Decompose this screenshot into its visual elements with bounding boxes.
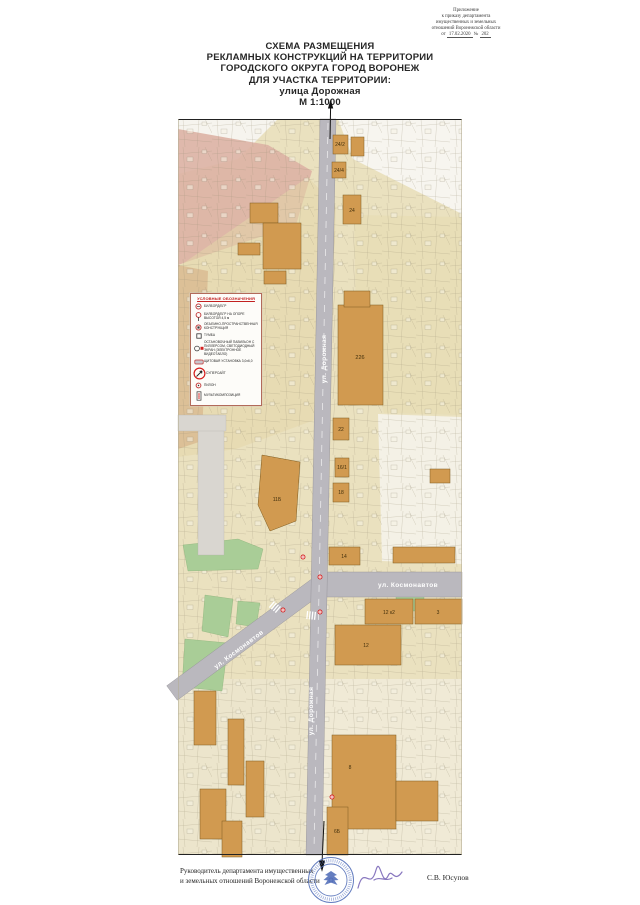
legend-label: ТУМБА — [204, 334, 215, 338]
legend-label: ОСТАНОВОЧНЫЙ ПАВИЛЬОН С ПИЛЛЕРСОМ, СВЕТО… — [204, 341, 259, 356]
legend-label: БИЛБОРД/БГР — [204, 305, 226, 309]
ad-marker — [330, 795, 334, 799]
legend-item-billboard-pole: БИЛБОРД/БГР НА ОПОРЕ ВЫСОТОЙ 4,5 м — [193, 312, 259, 321]
street-label-kosmonavtov: ул. Космонавтов — [378, 582, 438, 589]
legend-item-shield-board: ЩИТОВАЯ УСТАНОВКА 3,0х6,0 — [193, 359, 259, 365]
supersite-icon — [193, 367, 206, 380]
scale-line: М 1:1000 — [120, 97, 520, 108]
appendix-reference: Приложение к приказу департамента имущес… — [400, 8, 532, 38]
building — [264, 271, 286, 284]
legend-label: ОБЪЕМНО-ПРОСТРАНСТВЕННАЯ КОНСТРУКЦИЯ — [204, 323, 259, 331]
city-map: 24/2 24/4 24 226 22 16/1 18 11Б 14 12 к2… — [178, 119, 462, 855]
building-label: 18 — [338, 490, 344, 496]
street-label-dorozhnaya: ул. Дорожная — [308, 687, 315, 736]
building — [430, 469, 450, 483]
building — [393, 547, 455, 563]
building-label: 12 — [363, 643, 369, 649]
pylon-icon — [193, 382, 204, 389]
order-number: 202 — [480, 32, 491, 38]
legend-item-multicomposition: МУЛЬТИКОМПОЗИЦИЯ — [193, 391, 259, 401]
legend-label: ПИЛОН — [204, 384, 216, 388]
legend-item-billboard: БИЛБОРД/БГР — [193, 303, 259, 310]
building-label: 24/2 — [335, 142, 345, 148]
building — [250, 203, 278, 223]
building — [194, 691, 216, 745]
building-label: 8 — [349, 765, 352, 771]
legend-label: ЩИТОВАЯ УСТАНОВКА 3,0х6,0 — [204, 360, 253, 364]
legend-label: БИЛБОРД/БГР НА ОПОРЕ ВЫСОТОЙ 4,5 м — [204, 313, 259, 321]
tumba-icon — [193, 333, 204, 339]
building-label: 14 — [341, 554, 347, 560]
street-label-dorozhnaya: ул. Дорожная — [321, 335, 328, 384]
service-road — [198, 415, 224, 555]
building-label: 22 — [338, 427, 344, 433]
ad-marker — [318, 575, 322, 579]
legend-item-tumba: ТУМБА — [193, 333, 259, 339]
building-label: 16/1 — [337, 465, 347, 471]
building-label: 24 — [349, 208, 355, 214]
building-label: 6Б — [334, 829, 341, 835]
scheme-document-page: Приложение к приказу департамента имущес… — [0, 0, 640, 905]
street-name-line: улица Дорожная — [120, 86, 520, 97]
multicomposition-icon — [193, 391, 204, 401]
signature — [352, 856, 414, 905]
appendix-line: отношений Воронежской области — [400, 26, 532, 32]
signer-title-line: и земельных отношений Воронежской област… — [180, 877, 320, 887]
building-8-annex — [396, 781, 438, 821]
title-line: СХЕМА РАЗМЕЩЕНИЯ — [120, 41, 520, 52]
building-label: 24/4 — [334, 168, 344, 174]
legend-label: МУЛЬТИКОМПОЗИЦИЯ — [204, 394, 240, 398]
building-label: 226 — [355, 355, 364, 361]
signer-title: Руководитель департамента имущественных … — [180, 867, 320, 886]
number-sign: № — [474, 32, 479, 37]
building-label: 11Б — [273, 497, 282, 503]
legend-item-supersite: СУПЕРСАЙТ — [193, 367, 259, 380]
ad-marker — [281, 608, 285, 612]
order-date: 17.02.2020 — [447, 32, 473, 38]
building-226-annex — [344, 291, 370, 307]
legend-item-volumetric: ОБЪЕМНО-ПРОСТРАНСТВЕННАЯ КОНСТРУКЦИЯ — [193, 323, 259, 331]
volumetric-structure-icon — [193, 324, 204, 331]
building — [351, 137, 364, 156]
billboard-icon — [193, 303, 204, 310]
legend-title: УСЛОВНЫЕ ОБОЗНАЧЕНИЯ — [193, 296, 259, 301]
building — [238, 243, 260, 255]
date-prefix: от — [441, 32, 445, 37]
building — [222, 821, 242, 857]
service-road — [178, 415, 226, 431]
billboard-pole-icon — [193, 312, 204, 321]
building-label: 3 — [437, 610, 440, 616]
legend-label: СУПЕРСАЙТ — [206, 372, 226, 376]
shield-board-icon — [193, 359, 204, 365]
ad-marker — [301, 555, 305, 559]
building — [228, 719, 244, 785]
signer-title-line: Руководитель департамента имущественных — [180, 867, 320, 877]
ad-marker — [318, 610, 322, 614]
legend-item-pavilion: ОСТАНОВОЧНЫЙ ПАВИЛЬОН С ПИЛЛЕРСОМ, СВЕТО… — [193, 341, 259, 356]
building — [246, 761, 264, 817]
scheme-title: СХЕМА РАЗМЕЩЕНИЯ РЕКЛАМНЫХ КОНСТРУКЦИЙ Н… — [120, 41, 520, 108]
legend-item-pylon: ПИЛОН — [193, 382, 259, 389]
building-label: 12 к2 — [383, 610, 395, 616]
pavilion-icon — [193, 345, 204, 352]
green-area — [202, 595, 233, 637]
building — [263, 223, 301, 269]
title-line: ДЛЯ УЧАСТКА ТЕРРИТОРИИ: — [120, 75, 520, 86]
signer-name: С.В. Юсупов — [427, 873, 469, 882]
title-line: РЕКЛАМНЫХ КОНСТРУКЦИЙ НА ТЕРРИТОРИИ — [120, 52, 520, 63]
title-line: ГОРОДСКОГО ОКРУГА ГОРОД ВОРОНЕЖ — [120, 63, 520, 74]
official-stamp — [305, 854, 357, 905]
appendix-date-line: от 17.02.2020 № 202 — [400, 32, 532, 38]
map-legend: УСЛОВНЫЕ ОБОЗНАЧЕНИЯ БИЛБОРД/БГР БИЛБОРД… — [190, 293, 262, 406]
